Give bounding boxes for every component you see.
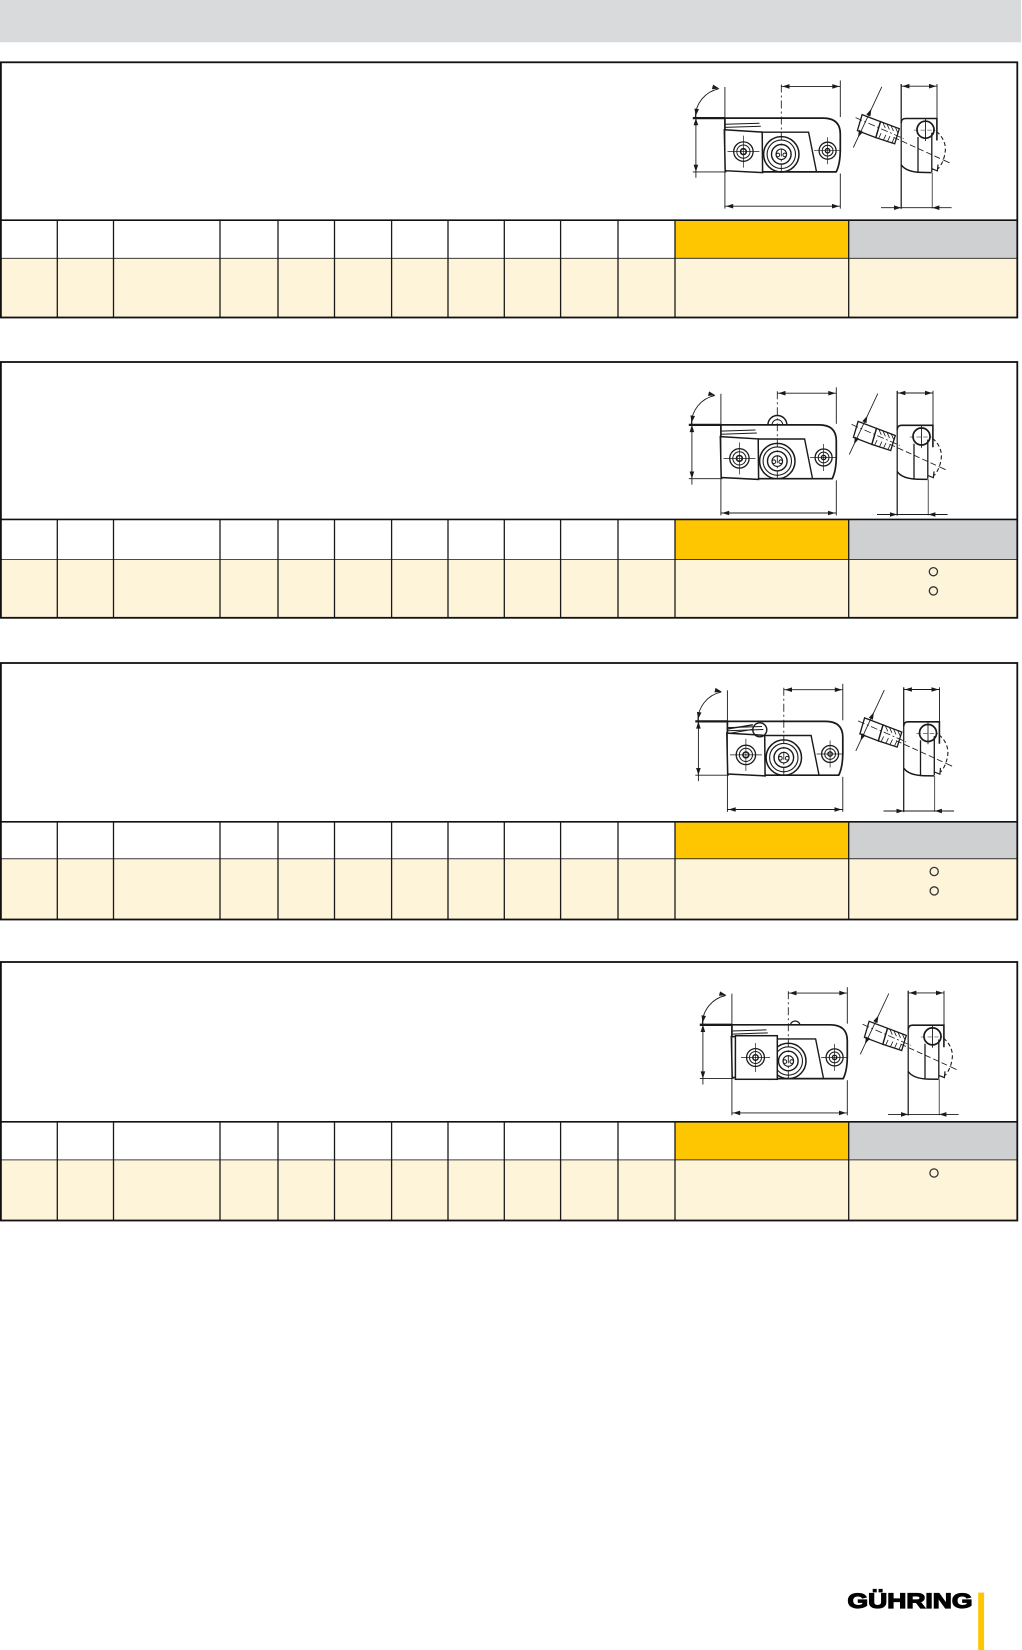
svg-text:GÜHRING: GÜHRING [848,1590,973,1613]
